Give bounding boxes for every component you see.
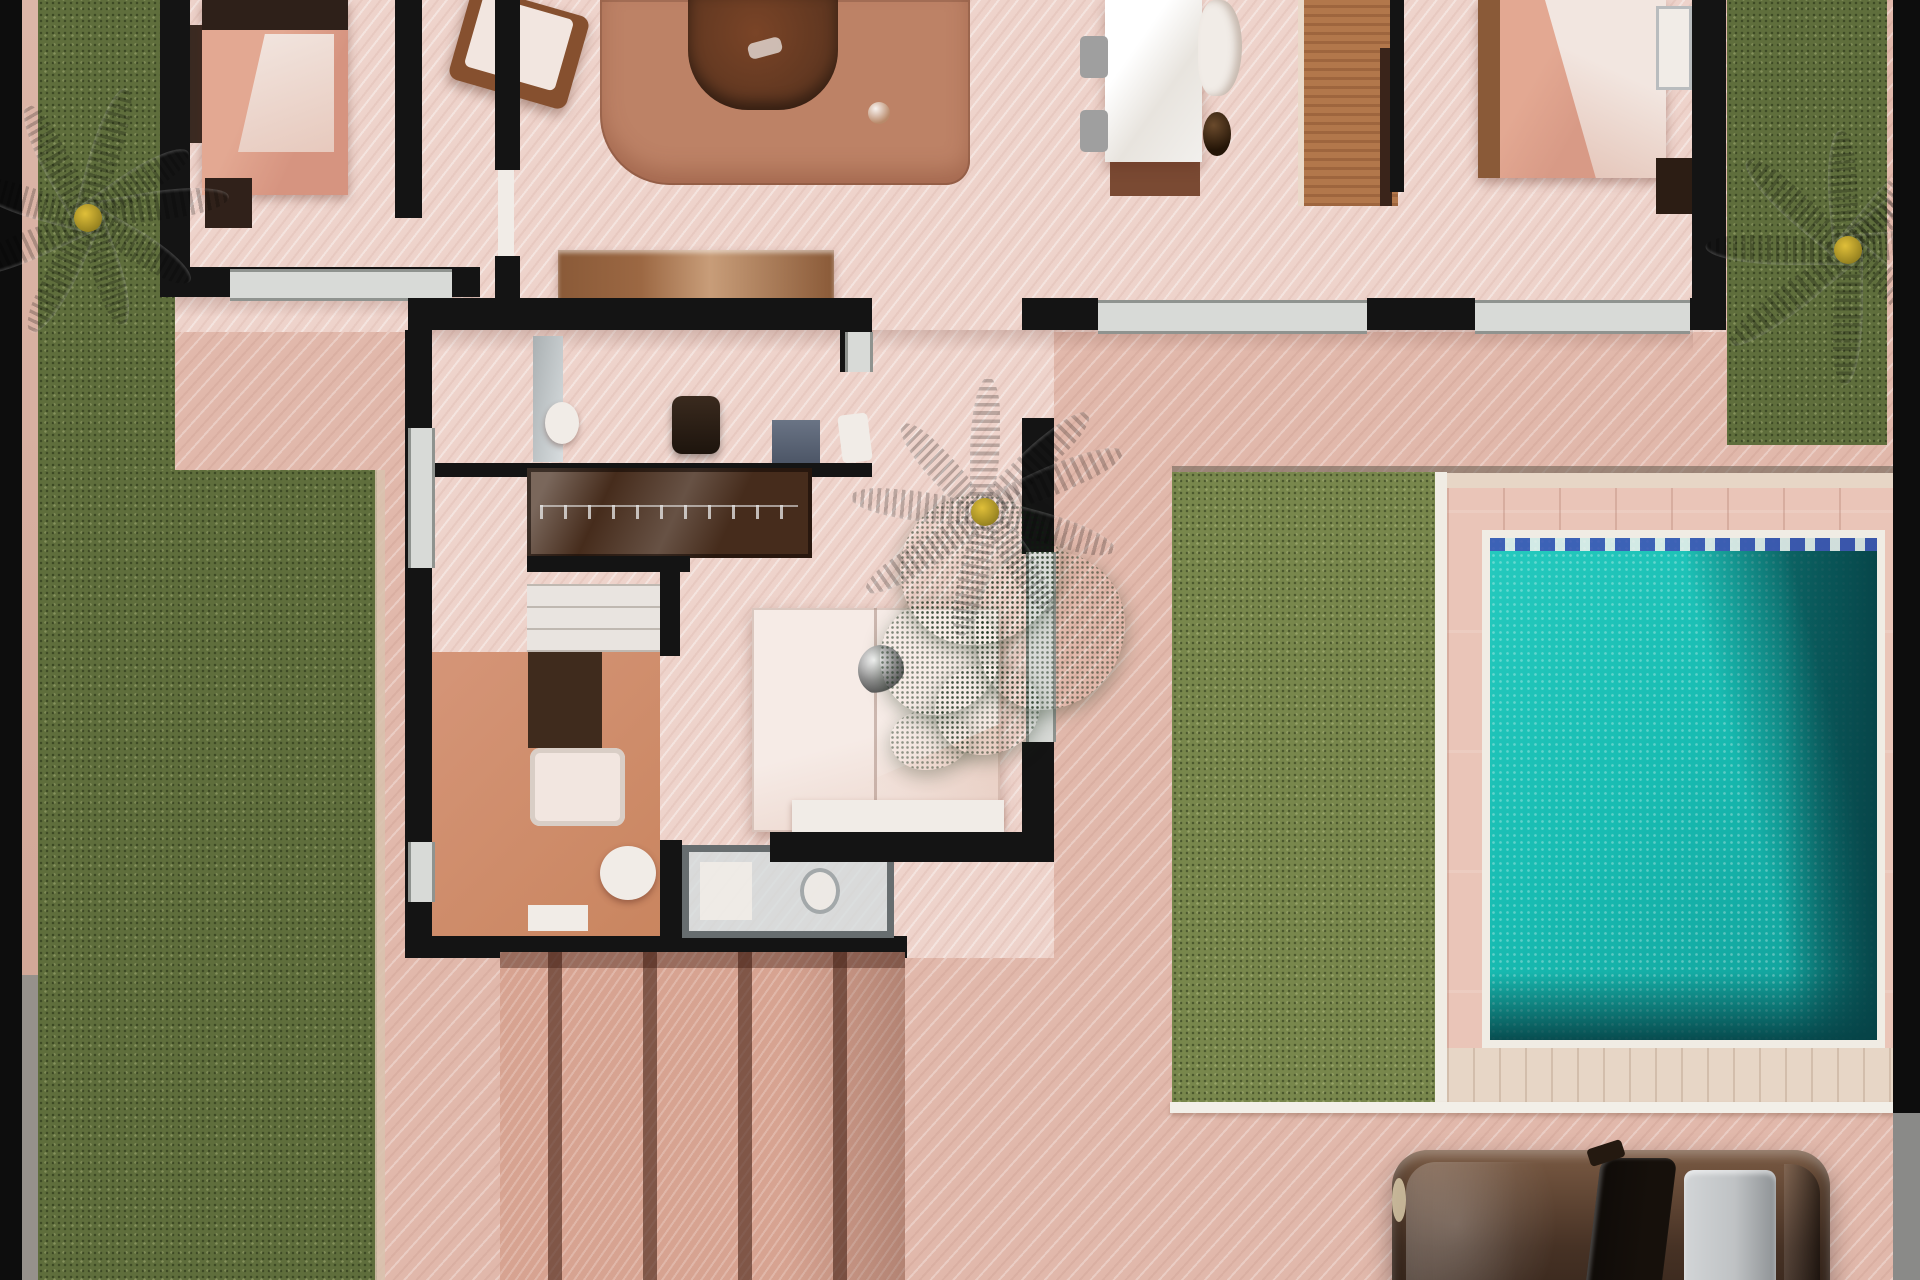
- shower-bench: [700, 862, 752, 920]
- floor-plan-render: [0, 0, 1920, 1280]
- garden-curb: [375, 470, 385, 1280]
- palm-crown: [74, 204, 102, 232]
- pool-waterline-tiles: [1490, 538, 1877, 551]
- deck-south-band: [1447, 1048, 1893, 1104]
- bedroom3-wall-south: [770, 832, 1054, 862]
- stool: [1080, 36, 1108, 78]
- bedroom2-bench: [1656, 158, 1692, 214]
- shower-drain: [800, 868, 840, 914]
- bedroom2-wall-right: [1692, 0, 1726, 330]
- pool-wall-shadow: [1490, 972, 1877, 1040]
- desk-chair: [672, 396, 720, 454]
- window-bedroom2-south: [1475, 300, 1690, 334]
- left-garden: [38, 470, 377, 1280]
- bedroom2-wall-left: [1390, 0, 1404, 192]
- bedroom3-bench: [792, 800, 1004, 834]
- hall-door: [837, 412, 873, 463]
- pergola-shadow: [500, 952, 905, 968]
- kitchen-bowl: [1203, 112, 1231, 156]
- pergola-deck: [500, 952, 905, 1280]
- kitchen-island: [1105, 0, 1202, 162]
- bedroom2-nightstand: [1656, 6, 1692, 90]
- bedroom3-wall-right-b: [1022, 742, 1054, 838]
- bath-vanity: [528, 652, 602, 748]
- driveway-edge: [1170, 1102, 1893, 1113]
- bathtub: [530, 748, 625, 826]
- central-garden: [1172, 472, 1435, 1103]
- blue-bench: [772, 420, 820, 464]
- deck-top-strip: [1447, 473, 1893, 488]
- wall-main-south-c: [1367, 298, 1475, 330]
- bedroom1-wall-right: [395, 0, 422, 218]
- car-trunk: [1784, 1164, 1820, 1280]
- garden-curb-right: [1435, 472, 1447, 1103]
- window-kitchen-south: [1098, 300, 1367, 334]
- car-hood-shine: [1406, 1162, 1576, 1280]
- closet-shelves: [527, 584, 662, 652]
- bath-shelf: [528, 905, 588, 931]
- wall-closet-right: [660, 556, 680, 656]
- toilet-2: [600, 846, 656, 900]
- wardrobe-hangers: [540, 505, 798, 519]
- sideboard: [558, 250, 834, 302]
- window-mid-left-a: [408, 428, 435, 568]
- sill-return: [845, 332, 873, 372]
- wall-living-vert2: [495, 256, 520, 300]
- pool-wall-shadow: [1782, 538, 1877, 1040]
- floor-lamp: [868, 102, 890, 124]
- palm-crown: [971, 498, 999, 526]
- car: [1392, 1150, 1830, 1280]
- wall-main-south-b: [1022, 298, 1098, 330]
- stool: [1080, 110, 1108, 152]
- window-mid-left-b: [408, 842, 435, 902]
- bedroom1-headboard: [202, 0, 348, 30]
- door-leaf: [498, 170, 514, 256]
- bedroom1-window: [230, 269, 452, 301]
- wall-living-vert: [495, 0, 520, 170]
- plot-border-right: [1893, 0, 1920, 1113]
- car-headlight: [1392, 1178, 1406, 1222]
- pool: [1490, 538, 1877, 1040]
- bedroom2-headboard: [1478, 0, 1500, 178]
- plot-border-right-concrete: [1893, 1113, 1920, 1280]
- wall-main-south-a: [408, 298, 872, 330]
- toilet-1: [545, 402, 579, 444]
- wall-shower-left: [660, 840, 682, 940]
- palm-crown: [1834, 236, 1862, 264]
- car-rear-glass: [1684, 1170, 1776, 1280]
